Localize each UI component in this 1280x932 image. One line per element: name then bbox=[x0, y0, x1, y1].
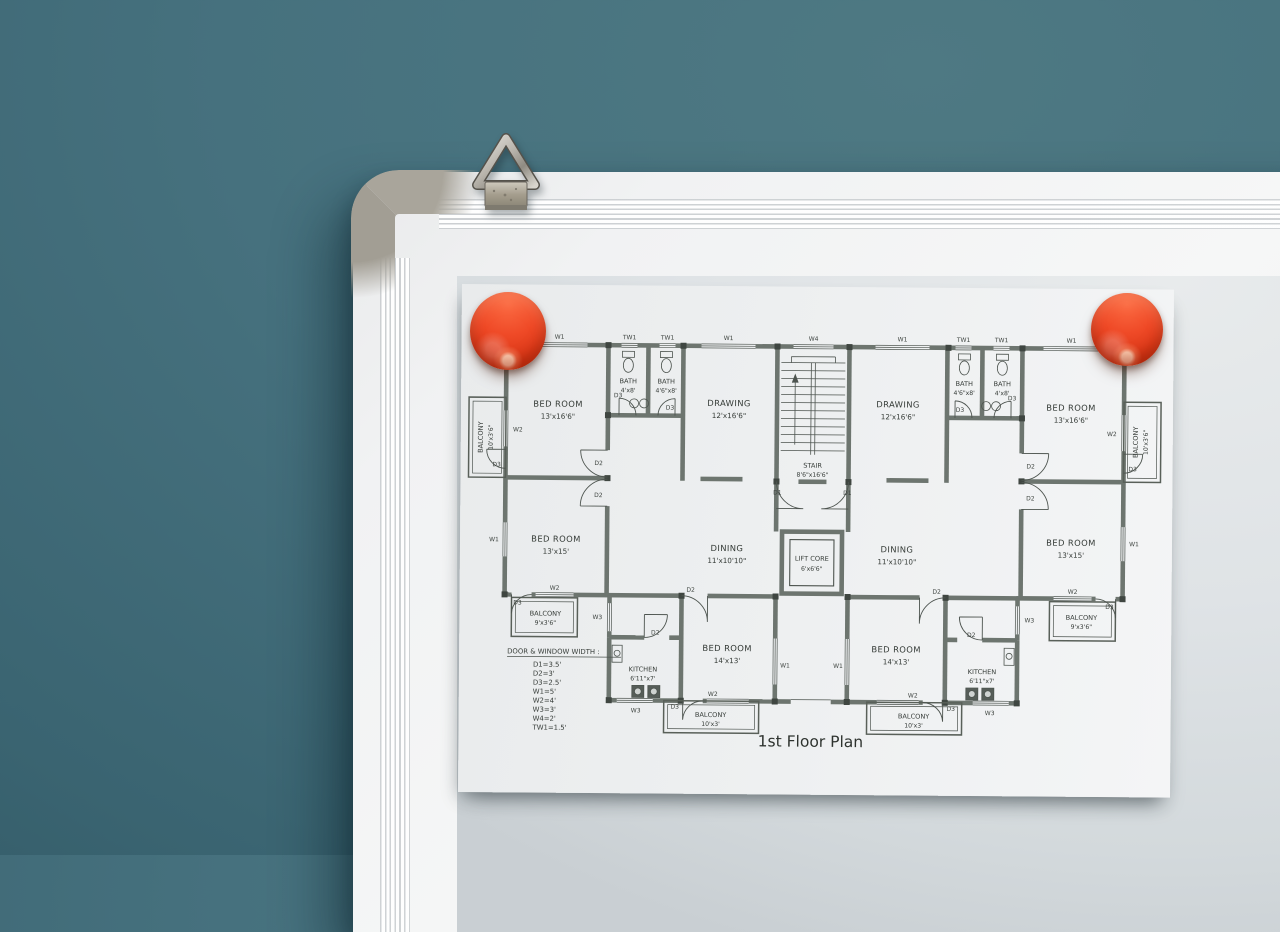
room-label-kitchen-l: KITCHEN bbox=[629, 665, 658, 673]
room-size-bed-tr: 13'x16'6" bbox=[1054, 416, 1088, 425]
plan-title: 1st Floor Plan bbox=[758, 732, 864, 751]
room-size-dining-l: 11'x10'10" bbox=[707, 556, 746, 565]
whiteboard-frame-top-ridges bbox=[439, 199, 1280, 229]
door-label: D2 bbox=[594, 492, 603, 499]
room-label-kitchen-r: KITCHEN bbox=[968, 668, 997, 676]
window-label: W3 bbox=[1024, 617, 1034, 624]
room-label-balcony-ml: BALCONY bbox=[530, 610, 562, 618]
floor-plan-paper: BED ROOM 13'x16'6" BATH 4'x8' BATH 4'6"x… bbox=[458, 284, 1174, 798]
window-label: W1 bbox=[724, 335, 734, 342]
room-size-kitchen-l: 6'11"x7' bbox=[630, 675, 656, 682]
room-label-bath3: BATH bbox=[955, 380, 973, 388]
room-label-dining-l: DINING bbox=[710, 543, 743, 553]
room-label-bath4: BATH bbox=[993, 380, 1011, 388]
window-label: W1 bbox=[1129, 541, 1139, 548]
legend-item: D2=3' bbox=[533, 670, 555, 678]
window-label: W2 bbox=[1107, 431, 1117, 438]
room-size-balcony-bl: 10'x3' bbox=[701, 721, 720, 728]
room-label-bath1: BATH bbox=[619, 377, 637, 385]
legend-item: D1=3.5' bbox=[533, 661, 561, 669]
room-size-bed-bl: 14'x13' bbox=[714, 656, 741, 665]
door-label: D3 bbox=[513, 599, 522, 606]
window-label: W4 bbox=[809, 336, 819, 343]
room-label-bed-bl: BED ROOM bbox=[702, 643, 752, 653]
window-label: W2 bbox=[708, 691, 718, 698]
room-label-stair: STAIR bbox=[803, 462, 822, 470]
room-size-bed-br: 14'x13' bbox=[883, 657, 910, 666]
legend-item: D3=2.5' bbox=[533, 679, 561, 687]
door-label: D2 bbox=[594, 460, 603, 467]
room-size-bath1: 4'x8' bbox=[621, 387, 636, 394]
room-size-drawing-r: 12'x16'6" bbox=[881, 412, 915, 421]
legend-item: W1=5' bbox=[533, 688, 556, 696]
magnet bbox=[470, 292, 546, 370]
door-label: D1 bbox=[843, 490, 852, 497]
room-labels: BED ROOM 13'x16'6" BATH 4'x8' BATH 4'6"x… bbox=[475, 376, 1151, 731]
annotation-labels: W1 TW1 TW1 W1 W4 W1 TW1 TW1 W1 W2 W2 W1 … bbox=[488, 333, 1141, 718]
room-size-kitchen-r: 6'11"x7' bbox=[969, 678, 995, 685]
legend-item: TW1=1.5' bbox=[531, 724, 566, 732]
room-size-bath2: 4'6"x8' bbox=[655, 388, 677, 395]
door-label: D3 bbox=[492, 461, 501, 468]
room-label-lift: LIFT CORE bbox=[795, 555, 829, 563]
window-label: TW1 bbox=[660, 335, 675, 342]
room-size-bath3: 4'6"x8' bbox=[953, 390, 975, 397]
door-label: D2 bbox=[1026, 495, 1035, 502]
room-label-drawing-l: DRAWING bbox=[707, 398, 751, 408]
room-label-balcony-tr: BALCONY bbox=[1132, 426, 1140, 458]
door-label: D2 bbox=[1026, 463, 1035, 470]
window-label: W3 bbox=[985, 710, 995, 717]
room-size-bed-ml: 13'x15' bbox=[543, 547, 570, 556]
legend-title: DOOR & WINDOW WIDTH : bbox=[507, 647, 600, 656]
door-label: D2 bbox=[686, 587, 695, 594]
window-label: TW1 bbox=[994, 337, 1009, 344]
door-label: D3 bbox=[1008, 395, 1017, 402]
window-label: W3 bbox=[631, 707, 641, 714]
door-label: D3 bbox=[614, 392, 623, 399]
room-label-bed-br: BED ROOM bbox=[871, 644, 921, 654]
door-label: D3 bbox=[1128, 466, 1137, 473]
window-label: W1 bbox=[833, 663, 843, 670]
room-label-bed-tr: BED ROOM bbox=[1046, 403, 1096, 413]
window-label: W2 bbox=[513, 426, 523, 433]
room-label-balcony-mr: BALCONY bbox=[1066, 614, 1098, 622]
window-label: W1 bbox=[898, 336, 908, 343]
window-label: W2 bbox=[550, 585, 560, 592]
window-label: TW1 bbox=[622, 334, 637, 341]
room-size-balcony-ml: 9'x3'6" bbox=[535, 620, 557, 627]
plan-fixtures bbox=[612, 351, 1017, 700]
window-label: W1 bbox=[489, 536, 499, 543]
window-label: W3 bbox=[592, 614, 602, 621]
room-size-balcony-tr: 10'x3'6" bbox=[1143, 430, 1150, 456]
floor-plan: BED ROOM 13'x16'6" BATH 4'x8' BATH 4'6"x… bbox=[458, 284, 1174, 798]
room-label-bed-tl: BED ROOM bbox=[533, 399, 583, 409]
door-label: D3 bbox=[670, 704, 679, 711]
window-label: W2 bbox=[1068, 589, 1078, 596]
room-size-balcony-br: 10'x3' bbox=[904, 722, 923, 729]
hanging-hook-icon bbox=[470, 129, 542, 215]
room-label-bed-mr: BED ROOM bbox=[1046, 538, 1096, 548]
window-label: W2 bbox=[908, 693, 918, 700]
room-size-stair: 8'6"x16'6" bbox=[797, 472, 829, 479]
room-size-balcony-tl: 10'x3'6" bbox=[488, 424, 495, 450]
door-label: D3 bbox=[946, 706, 955, 713]
photo-scene: { "colors": { "wall": "#46717e", "wall-l… bbox=[0, 0, 1280, 855]
window-label: W1 bbox=[555, 334, 565, 341]
door-label: D2 bbox=[932, 589, 941, 596]
door-label: D2 bbox=[651, 629, 660, 636]
room-label-balcony-br: BALCONY bbox=[898, 712, 930, 720]
door-label: D2 bbox=[967, 632, 976, 639]
window-label: W1 bbox=[780, 663, 790, 670]
room-label-balcony-tl: BALCONY bbox=[477, 420, 485, 452]
window-label: TW1 bbox=[956, 337, 971, 344]
door-label: D3 bbox=[956, 407, 965, 414]
room-size-drawing-l: 12'x16'6" bbox=[712, 411, 746, 420]
magnet bbox=[1091, 293, 1163, 366]
stair-treads bbox=[781, 357, 846, 455]
room-size-bed-mr: 13'x15' bbox=[1058, 551, 1085, 560]
door-label: D1 bbox=[773, 489, 782, 496]
door-label: D3 bbox=[666, 405, 675, 412]
room-size-balcony-mr: 9'x3'6" bbox=[1071, 624, 1093, 631]
room-label-bed-ml: BED ROOM bbox=[531, 534, 581, 544]
legend-item: W2=4' bbox=[533, 697, 556, 705]
room-size-lift: 6'x6'6" bbox=[801, 566, 823, 573]
door-label: D3 bbox=[1105, 604, 1114, 611]
room-label-balcony-bl: BALCONY bbox=[695, 711, 727, 719]
plan-legend: DOOR & WINDOW WIDTH : D1=3.5' D2=3' D3=2… bbox=[506, 647, 621, 732]
room-label-drawing-r: DRAWING bbox=[876, 399, 920, 409]
room-label-bath2: BATH bbox=[657, 378, 675, 386]
legend-item: W3=3' bbox=[533, 706, 556, 714]
legend-item: W4=2' bbox=[533, 715, 556, 723]
room-label-dining-r: DINING bbox=[880, 544, 913, 554]
window-label: W1 bbox=[1067, 338, 1077, 345]
room-size-dining-r: 11'x10'10" bbox=[877, 557, 916, 566]
whiteboard-frame-left-ridges bbox=[380, 258, 410, 932]
room-size-bed-tl: 13'x16'6" bbox=[541, 412, 575, 421]
